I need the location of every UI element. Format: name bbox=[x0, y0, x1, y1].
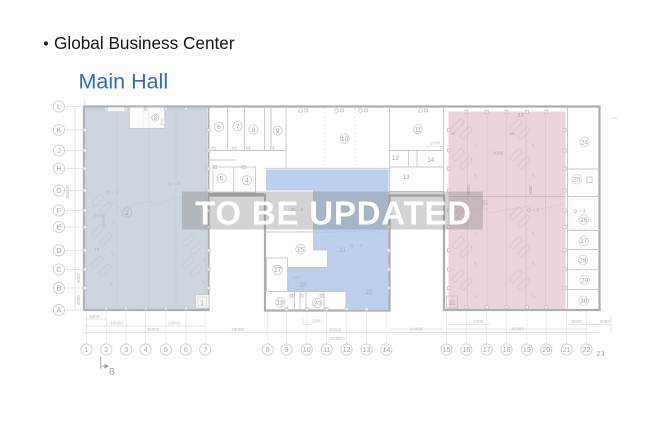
svg-text:28: 28 bbox=[579, 257, 587, 264]
svg-text:Main Hall: Main Hall bbox=[79, 70, 169, 94]
svg-text:Global Business Center: Global Business Center bbox=[54, 33, 235, 53]
svg-text:F: F bbox=[57, 206, 62, 215]
svg-text:12: 12 bbox=[392, 155, 399, 162]
svg-text:G: G bbox=[56, 186, 62, 195]
svg-text:16: 16 bbox=[462, 345, 470, 354]
svg-text:18000: 18000 bbox=[168, 321, 181, 326]
svg-text:13: 13 bbox=[403, 174, 410, 181]
svg-text:1000: 1000 bbox=[493, 151, 504, 157]
svg-text:6000: 6000 bbox=[89, 314, 100, 319]
svg-text:B: B bbox=[109, 367, 115, 377]
svg-text:D: D bbox=[56, 246, 61, 255]
svg-text:10: 10 bbox=[303, 345, 311, 354]
svg-text:26: 26 bbox=[580, 217, 588, 224]
svg-text:8: 8 bbox=[252, 127, 256, 134]
svg-text:18000: 18000 bbox=[231, 327, 244, 332]
svg-text:24: 24 bbox=[581, 139, 589, 146]
svg-text:4: 4 bbox=[144, 345, 148, 354]
svg-text:22: 22 bbox=[583, 345, 591, 354]
svg-text:3: 3 bbox=[124, 345, 128, 354]
svg-text:15: 15 bbox=[443, 345, 451, 354]
svg-text:27: 27 bbox=[580, 238, 588, 245]
svg-text:45: 45 bbox=[94, 247, 100, 253]
svg-text:6: 6 bbox=[184, 345, 188, 354]
svg-text:6000: 6000 bbox=[528, 185, 533, 195]
svg-text:1000: 1000 bbox=[473, 319, 484, 324]
svg-text:19: 19 bbox=[300, 282, 307, 289]
svg-text:4: 4 bbox=[245, 178, 249, 185]
svg-text:Q = 3: Q = 3 bbox=[106, 190, 118, 196]
svg-text:17: 17 bbox=[483, 345, 491, 354]
svg-text:9: 9 bbox=[276, 128, 280, 135]
svg-text:20: 20 bbox=[314, 300, 322, 307]
svg-text:L: L bbox=[57, 102, 61, 111]
svg-text:Q = 3: Q = 3 bbox=[350, 243, 362, 249]
svg-text:9: 9 bbox=[285, 345, 289, 354]
svg-text:E: E bbox=[57, 223, 62, 232]
svg-text:K: K bbox=[57, 126, 62, 135]
svg-text:2: 2 bbox=[125, 210, 129, 217]
svg-text:17: 17 bbox=[274, 267, 282, 274]
svg-text:15: 15 bbox=[297, 247, 305, 254]
svg-text:B: B bbox=[57, 284, 62, 293]
svg-text:2000: 2000 bbox=[291, 275, 301, 280]
svg-text:22: 22 bbox=[366, 289, 373, 296]
svg-text:10: 10 bbox=[341, 136, 349, 143]
svg-text:11: 11 bbox=[323, 345, 330, 354]
svg-text:45: 45 bbox=[451, 131, 456, 136]
svg-text:21: 21 bbox=[563, 345, 571, 354]
svg-text:18400: 18400 bbox=[410, 327, 423, 332]
svg-text:5: 5 bbox=[164, 345, 168, 354]
svg-text:21: 21 bbox=[339, 247, 346, 254]
svg-text:153000: 153000 bbox=[329, 336, 345, 341]
svg-text:45000: 45000 bbox=[511, 327, 524, 332]
svg-text:J: J bbox=[57, 146, 61, 155]
svg-text:6000: 6000 bbox=[76, 295, 81, 305]
svg-text:18: 18 bbox=[503, 345, 511, 354]
svg-text:7: 7 bbox=[203, 345, 207, 354]
svg-text:9000: 9000 bbox=[101, 215, 107, 226]
svg-text:3000: 3000 bbox=[600, 319, 611, 324]
svg-text:2: 2 bbox=[104, 345, 108, 354]
svg-text:6000: 6000 bbox=[76, 273, 81, 283]
svg-text:8: 8 bbox=[266, 345, 270, 354]
svg-text:32: 32 bbox=[449, 301, 456, 307]
svg-text:30: 30 bbox=[580, 298, 588, 305]
svg-text:13: 13 bbox=[363, 345, 371, 354]
svg-text:19: 19 bbox=[523, 345, 531, 354]
svg-text:Q = 3: Q = 3 bbox=[168, 181, 180, 187]
svg-text:36000: 36000 bbox=[147, 327, 160, 332]
svg-text:12: 12 bbox=[343, 345, 351, 354]
svg-text:11: 11 bbox=[414, 127, 421, 134]
svg-text:1: 1 bbox=[84, 345, 88, 354]
svg-text:Q = 3: Q = 3 bbox=[527, 208, 539, 214]
svg-text:18000: 18000 bbox=[110, 321, 123, 326]
svg-text:1000: 1000 bbox=[430, 141, 441, 147]
svg-text:6: 6 bbox=[217, 124, 221, 131]
svg-text:7: 7 bbox=[236, 124, 240, 131]
svg-text:5: 5 bbox=[220, 176, 224, 183]
svg-text:H: H bbox=[56, 164, 61, 173]
svg-text:18: 18 bbox=[277, 300, 285, 307]
svg-text:20: 20 bbox=[542, 345, 550, 354]
svg-text:45: 45 bbox=[510, 131, 515, 136]
svg-text:C: C bbox=[56, 265, 61, 274]
svg-text:23: 23 bbox=[597, 349, 605, 358]
svg-text:14: 14 bbox=[427, 157, 434, 164]
svg-text:2000: 2000 bbox=[311, 319, 322, 324]
svg-text:60000: 60000 bbox=[65, 185, 71, 199]
svg-text:36000: 36000 bbox=[329, 327, 342, 332]
svg-text:29: 29 bbox=[581, 277, 589, 284]
svg-text:6000: 6000 bbox=[572, 319, 583, 324]
svg-text:14: 14 bbox=[382, 345, 390, 354]
svg-text:23: 23 bbox=[518, 113, 524, 119]
svg-text:A: A bbox=[57, 306, 62, 315]
svg-text:Q = 3: Q = 3 bbox=[574, 209, 586, 215]
svg-text:25: 25 bbox=[573, 177, 581, 184]
svg-text:TO BE UPDATED: TO BE UPDATED bbox=[195, 194, 472, 231]
